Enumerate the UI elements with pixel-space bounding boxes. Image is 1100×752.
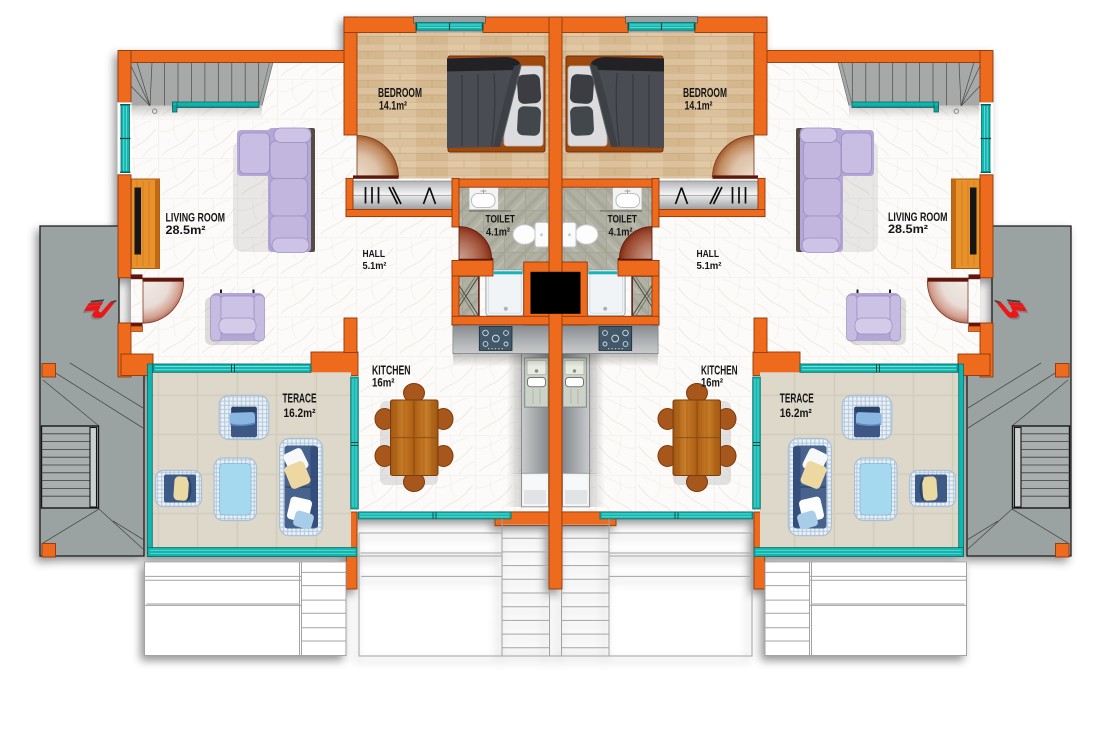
svg-text:HALL: HALL xyxy=(697,248,720,260)
svg-text:28.5m²: 28.5m² xyxy=(888,222,928,236)
svg-text:5.1m²: 5.1m² xyxy=(697,260,722,272)
svg-text:16.2m²: 16.2m² xyxy=(780,406,812,420)
svg-text:4.1m²: 4.1m² xyxy=(609,227,633,239)
svg-text:TERACE: TERACE xyxy=(780,392,814,406)
svg-text:16m²: 16m² xyxy=(701,376,723,390)
svg-text:16m²: 16m² xyxy=(372,376,395,390)
svg-text:TOILET: TOILET xyxy=(486,214,516,226)
svg-text:TERACE: TERACE xyxy=(283,392,317,406)
svg-text:14.1m²: 14.1m² xyxy=(685,99,713,113)
svg-text:4.1m²: 4.1m² xyxy=(486,227,510,239)
svg-text:TOILET: TOILET xyxy=(608,214,638,226)
svg-text:HALL: HALL xyxy=(363,248,386,260)
svg-text:5.1m²: 5.1m² xyxy=(363,260,387,272)
svg-text:28.5m²: 28.5m² xyxy=(166,223,206,237)
svg-text:16.2m²: 16.2m² xyxy=(284,406,316,420)
svg-text:14.1m²: 14.1m² xyxy=(379,99,407,113)
